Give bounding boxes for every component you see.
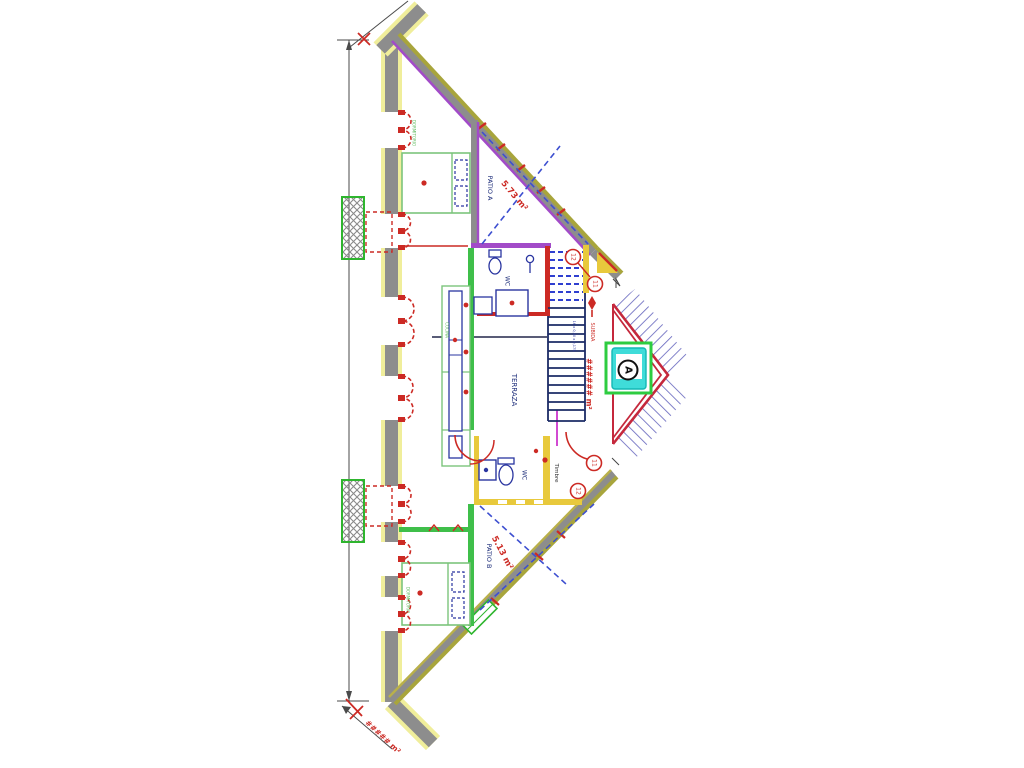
shutter-box-upper (342, 197, 364, 259)
stair-spec-label: 16 x 0,30 x 0,175 (572, 321, 576, 352)
stair-direction-arrow (588, 296, 596, 310)
patio-b-label: PATIO B (485, 544, 493, 569)
toilet-tank (489, 250, 501, 257)
wc-lower-label: WC (521, 470, 528, 480)
badge-top-inner-label: 11 (592, 280, 599, 288)
wc-upper-label: WC (504, 276, 511, 286)
toilet-tank-lower (498, 458, 514, 464)
toilet-lower (499, 465, 513, 485)
floor-plan-canvas: PATIO A 5.73 m² PATIO B 5.13 m² TERRAZA … (0, 0, 1024, 768)
kitchen-counter (442, 286, 492, 466)
bedroom-lower (402, 563, 470, 625)
bed-upper (402, 153, 470, 213)
timbre-label: Timbre (553, 462, 559, 483)
badge-top-outer-label: 12 (570, 253, 577, 261)
elevator-letter: A (623, 366, 634, 374)
bedroom-upper-label: DORMITORIO (412, 120, 417, 146)
door-arc-bottom-right (566, 432, 594, 460)
toilet-upper (489, 258, 501, 274)
badge-bottom-outer-label: 12 (575, 487, 582, 495)
shutter-box-lower (342, 480, 364, 542)
bedroom-upper (402, 153, 470, 213)
area-bottom-label: ##### m² (363, 718, 402, 755)
terrace-label: TERRAZA (510, 373, 518, 407)
table (474, 297, 492, 314)
kitchen-label: COCINA (445, 322, 450, 338)
stair-direction-label: SUBIDA (589, 323, 595, 343)
area-right-label: ###### m² (585, 358, 594, 409)
badge-bottom-inner-label: 11 (591, 459, 598, 467)
shower-head (526, 255, 533, 262)
wc-lower-room (470, 440, 548, 485)
bedroom-lower-label: DORMITORIO (406, 587, 411, 613)
patio-a-label: PATIO A (486, 176, 494, 202)
top-right-wall-segment (590, 248, 622, 280)
floor-plan-page: PATIO A 5.73 m² PATIO B 5.13 m² TERRAZA … (0, 0, 1024, 768)
doorbell-symbol (534, 449, 538, 453)
